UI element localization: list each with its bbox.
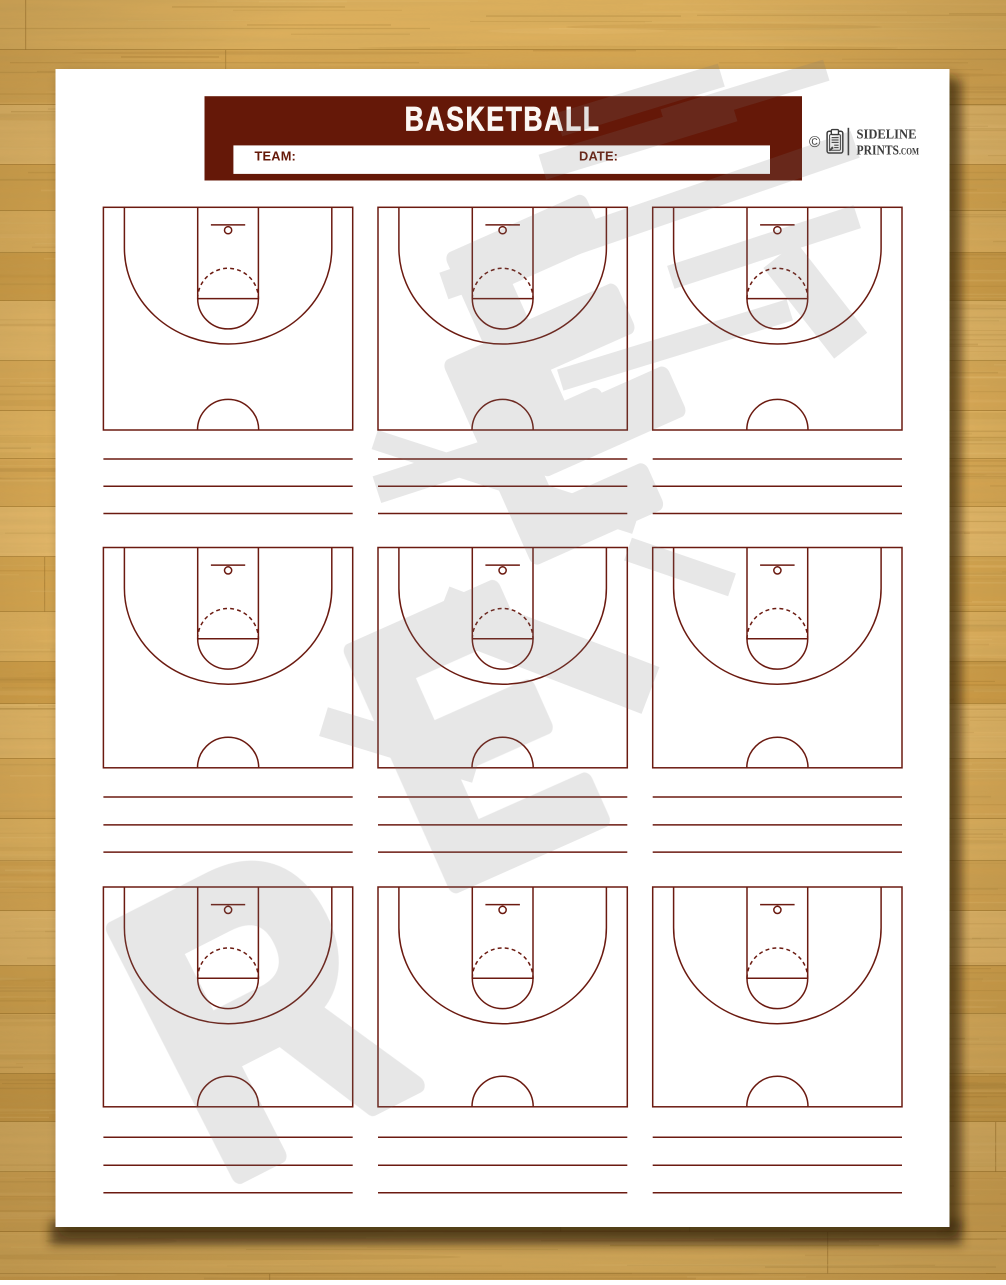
svg-text:SIDELINE: SIDELINE: [857, 127, 917, 142]
svg-text:TEAM:: TEAM:: [255, 148, 297, 163]
